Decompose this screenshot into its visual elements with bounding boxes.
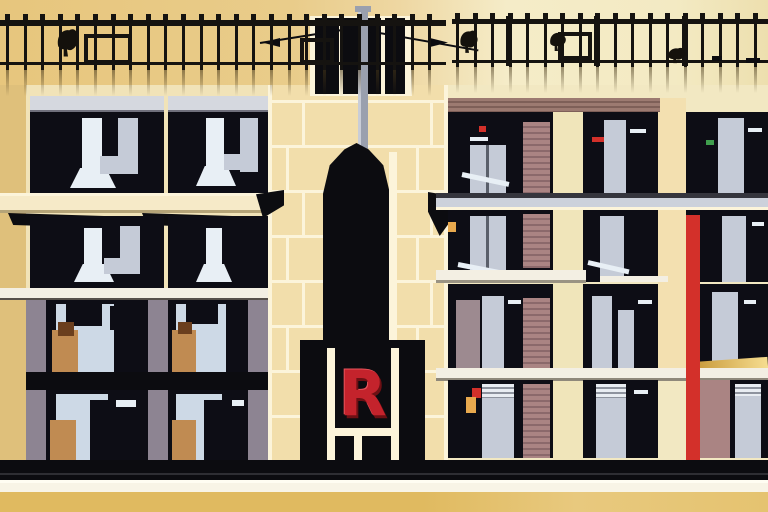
railing-reflection [509, 67, 512, 93]
distant-bird [712, 56, 722, 61]
door-panel [596, 398, 626, 458]
railing-reflection [182, 70, 185, 96]
ledge-shadow [0, 210, 268, 213]
white-dash [634, 390, 648, 394]
railing-reflection [649, 67, 652, 93]
stone-joint [416, 235, 419, 280]
railing-bar [217, 20, 220, 70]
dark-shape [186, 300, 218, 324]
railing-reflection [147, 70, 150, 96]
red-stripe [686, 215, 700, 460]
panel-line [486, 145, 489, 193]
railing-bar [614, 19, 617, 67]
gray-column [712, 292, 738, 368]
stone-joint [430, 100, 433, 145]
mauve-panel [700, 380, 730, 458]
railing-bar [631, 19, 634, 67]
gray-column [618, 310, 634, 368]
door-panel [482, 398, 514, 458]
flagpole-knob [355, 6, 371, 12]
railing-bar [411, 20, 414, 70]
sign-frame [391, 348, 399, 460]
railing-bar [24, 20, 27, 70]
orange-light [466, 397, 476, 413]
railing-bar [358, 20, 361, 70]
white-dash [752, 222, 764, 226]
stone-joint [286, 145, 289, 190]
stone-joint [286, 235, 289, 280]
white-dash [638, 300, 652, 304]
railing-reflection [754, 67, 757, 93]
railing-bar [182, 20, 185, 70]
green-light [706, 140, 714, 145]
railing-reflection [544, 67, 547, 93]
railing-reflection [393, 70, 396, 96]
reflection-shape [120, 226, 140, 274]
spandrel-band [26, 372, 268, 390]
railing-panel [300, 38, 334, 64]
railing-bar [235, 20, 238, 70]
shutter [523, 122, 550, 193]
railing-bar [340, 20, 343, 70]
reflection-foot [100, 156, 120, 174]
railing-bar [428, 20, 431, 70]
railing-reflection [200, 70, 203, 96]
mauve-panel [456, 300, 480, 368]
railing-bar [393, 20, 396, 70]
railing-bar [491, 19, 494, 67]
railing-reflection [270, 70, 273, 96]
railing-post [506, 16, 512, 66]
brown-shape [178, 322, 192, 334]
railing-reflection [526, 67, 529, 93]
railing-reflection [59, 70, 62, 96]
railing-reflection [323, 70, 326, 96]
orange-light [448, 222, 456, 232]
curtain-shape [206, 118, 224, 172]
reflection-foot [104, 258, 122, 274]
railing-reflection [614, 67, 617, 93]
railing-bar [270, 20, 273, 70]
railing-bar [736, 19, 739, 67]
railing-reflection [684, 67, 687, 93]
floor-ledge [600, 276, 668, 282]
stone-joint [286, 325, 289, 370]
left-gold-column [0, 85, 26, 462]
railing-bar [544, 19, 547, 67]
railing-bar [41, 20, 44, 70]
sign-frame [354, 436, 362, 460]
railing-bar [701, 19, 704, 67]
base-band-line [0, 473, 768, 475]
gray-column [604, 120, 626, 193]
railing-post [594, 16, 600, 66]
shutter [523, 298, 550, 368]
railing-reflection [41, 70, 44, 96]
gray-column [722, 216, 746, 282]
bird-silhouette [458, 28, 480, 54]
railing-bottom-rail [0, 62, 446, 65]
railing-reflection [217, 70, 220, 96]
railing-reflection [6, 70, 9, 96]
dark-shape [204, 400, 232, 460]
railing-bar [252, 20, 255, 70]
distant-bird [746, 58, 760, 63]
shutter [523, 214, 550, 268]
dark-bar [228, 300, 248, 372]
bird-silhouette [55, 26, 81, 58]
white-dash [748, 128, 762, 132]
building-facade-illustration: R [0, 0, 768, 512]
tan-figure [172, 330, 196, 372]
railing-reflection [491, 67, 494, 93]
railing-reflection [305, 70, 308, 96]
railing-reflection [288, 70, 291, 96]
gray-column [482, 296, 504, 368]
base-band-white [0, 483, 768, 492]
reflection-foot [224, 154, 240, 170]
bird-silhouette [548, 30, 568, 52]
railing-reflection [579, 67, 582, 93]
railing-reflection [701, 67, 704, 93]
railing-reflection [235, 70, 238, 96]
tan-figure [52, 330, 78, 372]
bird-silhouette [666, 46, 688, 64]
stone-joint [416, 145, 419, 190]
stone-joint [302, 100, 305, 145]
railing-reflection [24, 70, 27, 96]
railing-panel [84, 34, 132, 64]
railing-reflection [666, 67, 669, 93]
tan-figure [172, 420, 196, 460]
storefront-sign-letter: R [339, 357, 383, 431]
stone-joint [430, 280, 433, 325]
white-dash [744, 300, 756, 304]
stone-joint [302, 280, 305, 325]
curtain-shape [82, 118, 102, 174]
red-light [479, 126, 486, 132]
railing-bar [6, 20, 9, 70]
stone-joint [302, 190, 305, 235]
railing-reflection [252, 70, 255, 96]
dark-mark [110, 306, 120, 330]
shutter [523, 384, 550, 458]
railing-bar [200, 20, 203, 70]
tower-edge [268, 85, 272, 462]
railing-reflection [94, 70, 97, 96]
dark-mark [124, 306, 132, 324]
railing-bar [376, 20, 379, 70]
base-band-black [0, 460, 768, 480]
white-dash [470, 137, 488, 141]
railing-reflection [561, 67, 564, 93]
railing-reflection [411, 70, 414, 96]
railing-reflection [76, 70, 79, 96]
railing-reflection [631, 67, 634, 93]
dark-shape [90, 400, 116, 460]
railing-reflection [376, 70, 379, 96]
sign-frame [327, 348, 335, 460]
railing-bar [526, 19, 529, 67]
reflection-shape [118, 118, 138, 174]
white-dash [508, 300, 521, 304]
reflection-shape [240, 118, 258, 172]
brown-shape [58, 322, 74, 336]
railing-bar [147, 20, 150, 70]
railing-reflection [340, 70, 343, 96]
louver-vent [596, 384, 626, 398]
railing-reflection [164, 70, 167, 96]
railing-reflection [736, 67, 739, 93]
gray-column [592, 296, 612, 368]
gray-column [718, 118, 744, 193]
ledge-shadow [436, 280, 586, 283]
railing-reflection [129, 70, 132, 96]
cornice [448, 98, 660, 112]
base-band-gold [0, 492, 768, 512]
railing-reflection [596, 67, 599, 93]
door-panel [735, 396, 761, 458]
pilaster [658, 98, 686, 372]
railing-reflection [112, 70, 115, 96]
railing-bar [288, 20, 291, 70]
tan-figure [50, 420, 76, 460]
louver-vent [735, 384, 761, 396]
railing-bar [164, 20, 167, 70]
white-dash [630, 129, 646, 133]
railing-bar [649, 19, 652, 67]
railing-reflection [474, 67, 477, 93]
railing-reflection [428, 70, 431, 96]
scene-layer [0, 0, 768, 512]
railing-reflection [358, 70, 361, 96]
railing-reflection [456, 67, 459, 93]
railing-reflection [719, 67, 722, 93]
louver-vent [482, 384, 514, 398]
